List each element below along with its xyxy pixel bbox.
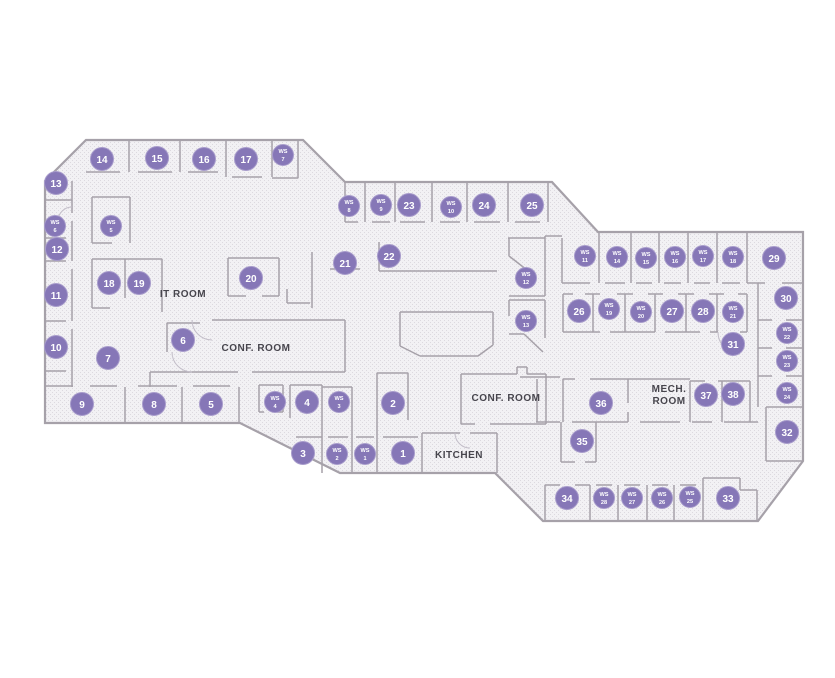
workstation-prefix: WS xyxy=(344,200,353,206)
workstation-marker-6[interactable]: WS6 xyxy=(45,216,66,237)
workstation-prefix: WS xyxy=(332,448,341,454)
office-marker-4[interactable]: 4 xyxy=(296,391,319,414)
office-number: 35 xyxy=(576,437,588,448)
office-number: 18 xyxy=(103,279,115,290)
office-marker-23[interactable]: 23 xyxy=(398,194,421,217)
workstation-number: 22 xyxy=(784,335,790,341)
office-marker-19[interactable]: 19 xyxy=(128,272,151,295)
office-number: 31 xyxy=(727,340,739,351)
office-marker-38[interactable]: 38 xyxy=(722,383,745,406)
office-number: 32 xyxy=(781,428,793,439)
office-marker-33[interactable]: 33 xyxy=(717,487,740,510)
workstation-prefix: WS xyxy=(270,396,279,402)
office-marker-27[interactable]: 27 xyxy=(661,300,684,323)
office-marker-15[interactable]: 15 xyxy=(146,147,169,170)
workstation-prefix: WS xyxy=(612,251,621,257)
office-number: 36 xyxy=(595,399,607,410)
office-number: 15 xyxy=(151,154,163,165)
office-marker-17[interactable]: 17 xyxy=(235,148,258,171)
workstation-marker-12[interactable]: WS12 xyxy=(516,268,537,289)
office-number: 30 xyxy=(780,294,792,305)
office-marker-29[interactable]: 29 xyxy=(763,247,786,270)
office-marker-37[interactable]: 37 xyxy=(695,384,718,407)
workstation-number: 20 xyxy=(638,314,644,320)
office-number: 8 xyxy=(151,400,157,411)
workstation-marker-4[interactable]: WS4 xyxy=(265,392,286,413)
workstation-marker-11[interactable]: WS11 xyxy=(575,246,596,267)
office-number: 27 xyxy=(666,307,678,318)
floor-plan-canvas: IT ROOMCONF. ROOMCONF. ROOMKITCHENMECH.R… xyxy=(0,0,835,678)
workstation-marker-16[interactable]: WS16 xyxy=(665,247,686,268)
workstation-marker-20[interactable]: WS20 xyxy=(631,302,652,323)
workstation-marker-24[interactable]: WS24 xyxy=(777,383,798,404)
workstation-marker-15[interactable]: WS15 xyxy=(636,248,657,269)
workstation-prefix: WS xyxy=(657,492,666,498)
workstation-prefix: WS xyxy=(636,306,645,312)
office-marker-35[interactable]: 35 xyxy=(571,430,594,453)
workstation-prefix: WS xyxy=(698,250,707,256)
workstation-number: 6 xyxy=(53,228,56,234)
workstation-prefix: WS xyxy=(446,201,455,207)
office-marker-10[interactable]: 10 xyxy=(45,336,68,359)
workstation-prefix: WS xyxy=(521,315,530,321)
workstation-marker-2[interactable]: WS2 xyxy=(327,444,348,465)
office-marker-28[interactable]: 28 xyxy=(692,300,715,323)
workstation-prefix: WS xyxy=(604,303,613,309)
office-number: 17 xyxy=(240,155,252,166)
office-number: 38 xyxy=(727,390,739,401)
workstation-prefix: WS xyxy=(580,250,589,256)
workstation-prefix: WS xyxy=(728,306,737,312)
workstation-number: 13 xyxy=(523,323,529,329)
office-number: 14 xyxy=(96,155,108,166)
room-label-kitchen: KITCHEN xyxy=(435,450,483,461)
workstation-marker-8[interactable]: WS8 xyxy=(339,196,360,217)
office-number: 19 xyxy=(133,279,145,290)
room-label-conf-room-west: CONF. ROOM xyxy=(222,343,291,354)
workstation-number: 18 xyxy=(730,259,736,265)
room-label-it-room: IT ROOM xyxy=(160,289,206,300)
office-marker-1[interactable]: 1 xyxy=(392,442,415,465)
office-number: 2 xyxy=(390,399,396,410)
workstation-prefix: WS xyxy=(641,252,650,258)
office-marker-20[interactable]: 20 xyxy=(240,267,263,290)
office-number: 23 xyxy=(403,201,415,212)
office-number: 34 xyxy=(561,494,573,505)
office-marker-24[interactable]: 24 xyxy=(473,194,496,217)
workstation-number: 17 xyxy=(700,258,706,264)
office-number: 11 xyxy=(51,291,62,302)
workstation-prefix: WS xyxy=(106,220,115,226)
office-number: 37 xyxy=(700,391,712,402)
workstation-prefix: WS xyxy=(334,396,343,402)
office-number: 25 xyxy=(526,201,538,212)
workstation-marker-19[interactable]: WS19 xyxy=(599,299,620,320)
workstation-prefix: WS xyxy=(360,448,369,454)
office-number: 3 xyxy=(300,449,306,460)
workstation-number: 1 xyxy=(363,456,366,462)
workstation-marker-27[interactable]: WS27 xyxy=(622,488,643,509)
workstation-number: 28 xyxy=(601,500,607,506)
office-number: 1 xyxy=(400,449,406,460)
office-number: 28 xyxy=(697,307,709,318)
office-marker-31[interactable]: 31 xyxy=(722,333,745,356)
workstation-marker-17[interactable]: WS17 xyxy=(693,246,714,267)
office-number: 13 xyxy=(50,179,62,190)
office-number: 9 xyxy=(79,400,85,411)
office-number: 7 xyxy=(105,354,111,365)
workstation-marker-21[interactable]: WS21 xyxy=(723,302,744,323)
workstation-number: 12 xyxy=(523,280,529,286)
office-marker-12[interactable]: 12 xyxy=(46,238,69,261)
workstation-marker-3[interactable]: WS3 xyxy=(329,392,350,413)
office-marker-21[interactable]: 21 xyxy=(334,252,357,275)
workstation-marker-9[interactable]: WS9 xyxy=(371,195,392,216)
workstation-prefix: WS xyxy=(728,251,737,257)
office-number: 10 xyxy=(50,343,62,354)
workstation-prefix: WS xyxy=(685,491,694,497)
office-marker-11[interactable]: 11 xyxy=(45,284,68,307)
office-number: 4 xyxy=(304,398,310,409)
workstation-number: 7 xyxy=(281,157,284,163)
workstation-number: 27 xyxy=(629,500,635,506)
workstation-prefix: WS xyxy=(599,492,608,498)
workstation-number: 25 xyxy=(687,499,693,505)
workstation-number: 3 xyxy=(337,404,340,410)
building-outline xyxy=(45,140,803,521)
workstation-number: 14 xyxy=(614,259,621,265)
office-marker-36[interactable]: 36 xyxy=(590,392,613,415)
workstation-number: 21 xyxy=(730,314,736,320)
room-label-mech-room: MECH. xyxy=(652,384,687,395)
office-marker-13[interactable]: 13 xyxy=(45,172,68,195)
room-label-conf-room-east: CONF. ROOM xyxy=(472,393,541,404)
office-marker-32[interactable]: 32 xyxy=(776,421,799,444)
room-label-mech-room: ROOM xyxy=(652,396,685,407)
workstation-marker-10[interactable]: WS10 xyxy=(441,197,462,218)
office-marker-22[interactable]: 22 xyxy=(378,245,401,268)
workstation-marker-5[interactable]: WS5 xyxy=(101,216,122,237)
office-floor-plan: IT ROOMCONF. ROOMCONF. ROOMKITCHENMECH.R… xyxy=(0,0,835,678)
office-marker-2[interactable]: 2 xyxy=(382,392,405,415)
workstation-prefix: WS xyxy=(627,492,636,498)
workstation-marker-23[interactable]: WS23 xyxy=(777,351,798,372)
workstation-number: 23 xyxy=(784,363,790,369)
workstation-marker-14[interactable]: WS14 xyxy=(607,247,628,268)
office-marker-16[interactable]: 16 xyxy=(193,148,216,171)
workstation-number: 16 xyxy=(672,259,678,265)
workstation-marker-22[interactable]: WS22 xyxy=(777,323,798,344)
workstation-prefix: WS xyxy=(782,387,791,393)
office-number: 22 xyxy=(383,252,395,263)
office-marker-8[interactable]: 8 xyxy=(143,393,166,416)
office-marker-26[interactable]: 26 xyxy=(568,300,591,323)
workstation-marker-18[interactable]: WS18 xyxy=(723,247,744,268)
workstation-marker-1[interactable]: WS1 xyxy=(355,444,376,465)
office-marker-18[interactable]: 18 xyxy=(98,272,121,295)
office-number: 20 xyxy=(245,274,257,285)
workstation-prefix: WS xyxy=(670,251,679,257)
office-marker-5[interactable]: 5 xyxy=(200,393,223,416)
workstation-prefix: WS xyxy=(782,355,791,361)
workstation-marker-26[interactable]: WS26 xyxy=(652,488,673,509)
workstation-number: 2 xyxy=(335,456,338,462)
workstation-number: 15 xyxy=(643,260,649,266)
workstation-number: 5 xyxy=(109,228,112,234)
workstation-number: 26 xyxy=(659,500,665,506)
workstation-marker-7[interactable]: WS7 xyxy=(273,145,294,166)
workstation-prefix: WS xyxy=(278,149,287,155)
workstation-number: 19 xyxy=(606,311,612,317)
workstation-number: 8 xyxy=(347,208,350,214)
workstation-number: 24 xyxy=(784,395,791,401)
office-number: 6 xyxy=(180,336,186,347)
office-marker-25[interactable]: 25 xyxy=(521,194,544,217)
office-number: 29 xyxy=(768,254,780,265)
office-number: 5 xyxy=(208,400,214,411)
office-marker-6[interactable]: 6 xyxy=(172,329,195,352)
workstation-prefix: WS xyxy=(50,220,59,226)
office-number: 16 xyxy=(198,155,210,166)
office-marker-7[interactable]: 7 xyxy=(97,347,120,370)
office-number: 33 xyxy=(722,494,734,505)
workstation-prefix: WS xyxy=(521,272,530,278)
office-number: 26 xyxy=(573,307,585,318)
office-number: 21 xyxy=(339,259,351,270)
workstation-marker-28[interactable]: WS28 xyxy=(594,488,615,509)
workstation-prefix: WS xyxy=(782,327,791,333)
workstation-prefix: WS xyxy=(376,199,385,205)
workstation-number: 11 xyxy=(582,258,588,264)
workstation-marker-25[interactable]: WS25 xyxy=(680,487,701,508)
workstation-marker-13[interactable]: WS13 xyxy=(516,311,537,332)
office-marker-30[interactable]: 30 xyxy=(775,287,798,310)
office-number: 12 xyxy=(51,245,63,256)
office-marker-9[interactable]: 9 xyxy=(71,393,94,416)
workstation-number: 10 xyxy=(448,209,454,215)
office-marker-34[interactable]: 34 xyxy=(556,487,579,510)
office-marker-14[interactable]: 14 xyxy=(91,148,114,171)
workstation-number: 9 xyxy=(379,207,382,213)
office-marker-3[interactable]: 3 xyxy=(292,442,315,465)
office-number: 24 xyxy=(478,201,490,212)
